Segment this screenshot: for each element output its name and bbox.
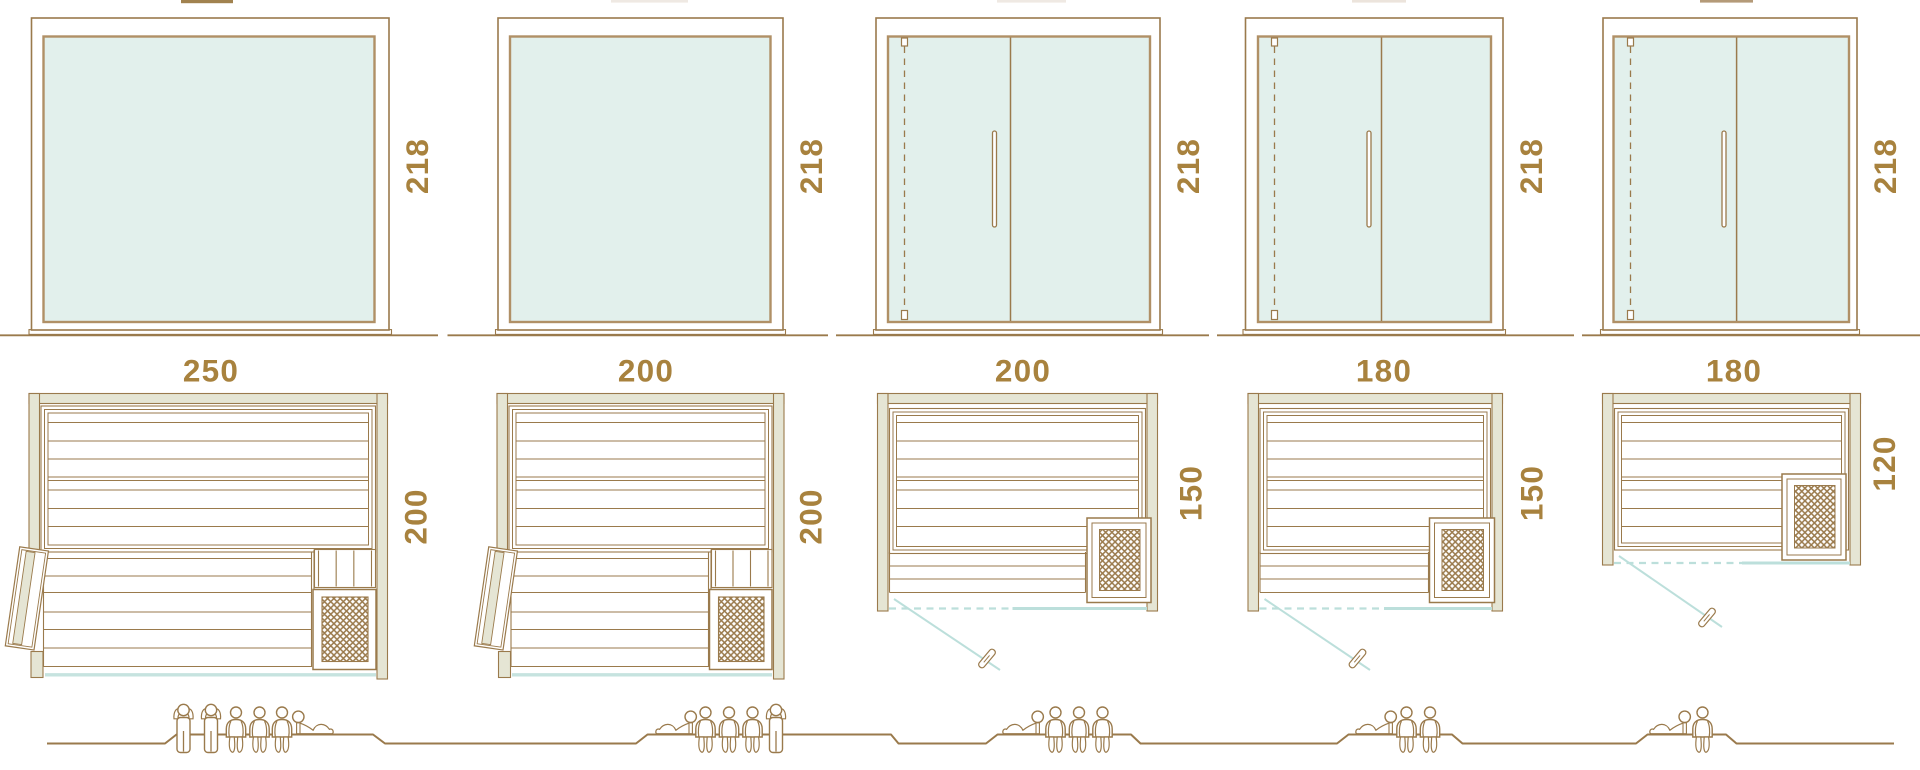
svg-text:120: 120	[1866, 435, 1902, 491]
svg-text:218: 218	[1867, 138, 1903, 194]
svg-text:180: 180	[1356, 353, 1412, 389]
svg-text:200: 200	[618, 353, 674, 389]
svg-text:218: 218	[1513, 138, 1549, 194]
svg-text:200: 200	[793, 488, 829, 544]
svg-text:200: 200	[398, 488, 434, 544]
svg-text:218: 218	[793, 138, 829, 194]
svg-text:218: 218	[1170, 138, 1206, 194]
svg-text:150: 150	[1514, 465, 1550, 521]
svg-text:250: 250	[183, 353, 239, 389]
svg-text:180: 180	[1706, 353, 1762, 389]
svg-text:218: 218	[399, 138, 435, 194]
svg-text:200: 200	[995, 353, 1051, 389]
svg-text:150: 150	[1173, 465, 1209, 521]
